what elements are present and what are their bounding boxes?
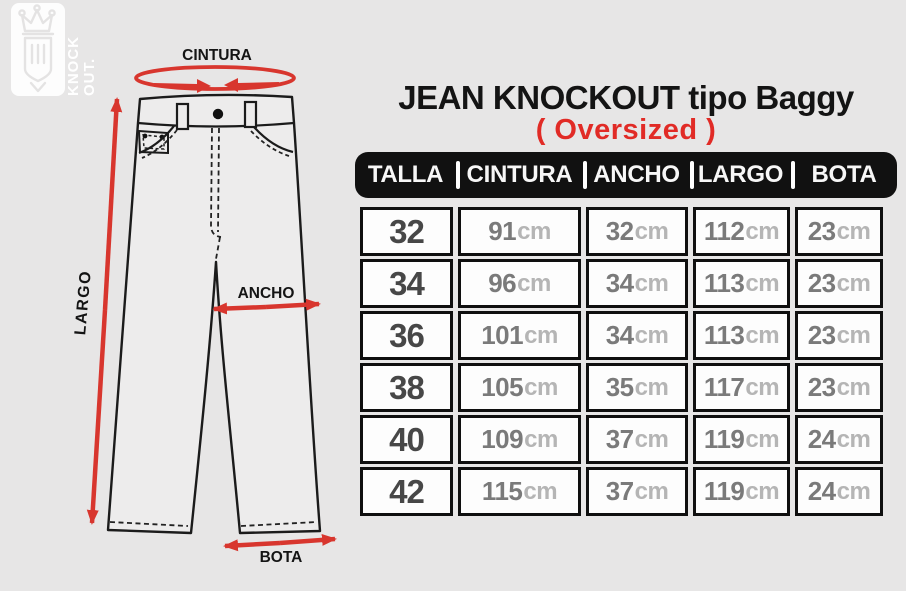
length-label: LARGO [72, 269, 95, 336]
header-ancho: ANCHO [583, 152, 690, 198]
cell-unit: cm [517, 270, 551, 298]
header-talla: TALLA [355, 152, 456, 198]
cell-unit: cm [745, 374, 779, 402]
cell-unit: cm [635, 374, 669, 402]
table-cell: 113cm [693, 259, 790, 308]
table-cell: 24cm [795, 467, 883, 516]
table-cell: 37cm [586, 415, 688, 464]
cell-value: 109 [481, 424, 523, 455]
cell-value: 23 [808, 268, 836, 299]
table-cell: 23cm [795, 207, 883, 256]
table-cell: 24cm [795, 415, 883, 464]
header-divider [583, 161, 587, 189]
cell-value: 32 [606, 216, 634, 247]
width-label: ANCHO [238, 285, 295, 302]
cell-unit: cm [745, 426, 779, 454]
size-table: 32 91cm 32cm 112cm 23cm 34 96cm 34cm 113… [360, 207, 883, 516]
cell-unit: cm [745, 478, 779, 506]
cell-unit: cm [517, 218, 551, 246]
cell-value: 113 [704, 320, 744, 351]
table-cell: 35cm [586, 363, 688, 412]
table-cell: 23cm [795, 311, 883, 360]
cell-unit: cm [837, 426, 871, 454]
table-cell: 96cm [458, 259, 581, 308]
table-cell: 23cm [795, 363, 883, 412]
hem-label: BOTA [260, 549, 303, 566]
cell-unit: cm [745, 322, 779, 350]
cell-unit: cm [524, 374, 558, 402]
cell-unit: cm [635, 270, 669, 298]
cell-unit: cm [837, 270, 871, 298]
cell-value: 91 [488, 216, 516, 247]
table-cell-size: 36 [360, 311, 453, 360]
cell-value: 23 [808, 372, 836, 403]
table-cell: 112cm [693, 207, 790, 256]
table-cell: 119cm [693, 467, 790, 516]
table-cell: 91cm [458, 207, 581, 256]
table-cell: 109cm [458, 415, 581, 464]
table-cell-size: 34 [360, 259, 453, 308]
header-largo: LARGO [690, 152, 791, 198]
cell-unit: cm [524, 426, 558, 454]
cell-value: 119 [704, 476, 744, 507]
waist-label: CINTURA [182, 47, 252, 64]
cell-value: 23 [808, 216, 836, 247]
cell-value: 105 [481, 372, 523, 403]
table-cell: 23cm [795, 259, 883, 308]
table-cell: 37cm [586, 467, 688, 516]
cell-value: 119 [704, 424, 744, 455]
cell-value: 115 [482, 476, 522, 507]
table-header: TALLA CINTURA ANCHO LARGO BOTA [355, 152, 897, 198]
table-cell-size: 40 [360, 415, 453, 464]
cell-value: 35 [606, 372, 634, 403]
cell-value: 112 [704, 216, 744, 247]
header-divider [791, 161, 795, 189]
header-divider [690, 161, 694, 189]
waist-measure-arrow [136, 67, 294, 93]
cell-value: 113 [704, 268, 744, 299]
hem-measure-arrow [225, 539, 335, 546]
cell-unit: cm [635, 478, 669, 506]
table-cell: 115cm [458, 467, 581, 516]
cell-value: 101 [481, 320, 523, 351]
page-subtitle: ( Oversized ) [355, 114, 897, 147]
table-cell: 117cm [693, 363, 790, 412]
jeans-outline [108, 95, 320, 533]
table-cell: 34cm [586, 311, 688, 360]
header-cintura: CINTURA [456, 152, 583, 198]
jeans-button [213, 109, 223, 119]
header-bota: BOTA [791, 152, 897, 198]
cell-unit: cm [745, 270, 779, 298]
cell-unit: cm [524, 322, 558, 350]
cell-unit: cm [635, 218, 669, 246]
table-cell: 101cm [458, 311, 581, 360]
cell-value: 117 [704, 372, 744, 403]
size-chart-infographic: KNOCK OUT. [0, 0, 906, 591]
header-divider [456, 161, 460, 189]
cell-unit: cm [745, 218, 779, 246]
cell-unit: cm [523, 478, 557, 506]
cell-value: 34 [606, 268, 634, 299]
cell-value: 34 [606, 320, 634, 351]
table-cell: 119cm [693, 415, 790, 464]
cell-unit: cm [837, 322, 871, 350]
cell-unit: cm [837, 478, 871, 506]
cell-unit: cm [837, 374, 871, 402]
cell-value: 24 [808, 476, 836, 507]
table-cell: 105cm [458, 363, 581, 412]
table-cell-size: 38 [360, 363, 453, 412]
table-cell: 34cm [586, 259, 688, 308]
cell-unit: cm [635, 322, 669, 350]
cell-value: 37 [606, 476, 634, 507]
cell-value: 96 [488, 268, 516, 299]
page-title: JEAN KNOCKOUT tipo Baggy [355, 79, 897, 117]
cell-value: 37 [606, 424, 634, 455]
cell-value: 23 [808, 320, 836, 351]
table-cell: 32cm [586, 207, 688, 256]
table-cell-size: 42 [360, 467, 453, 516]
cell-unit: cm [635, 426, 669, 454]
table-cell-size: 32 [360, 207, 453, 256]
cell-value: 24 [808, 424, 836, 455]
table-cell: 113cm [693, 311, 790, 360]
cell-unit: cm [837, 218, 871, 246]
